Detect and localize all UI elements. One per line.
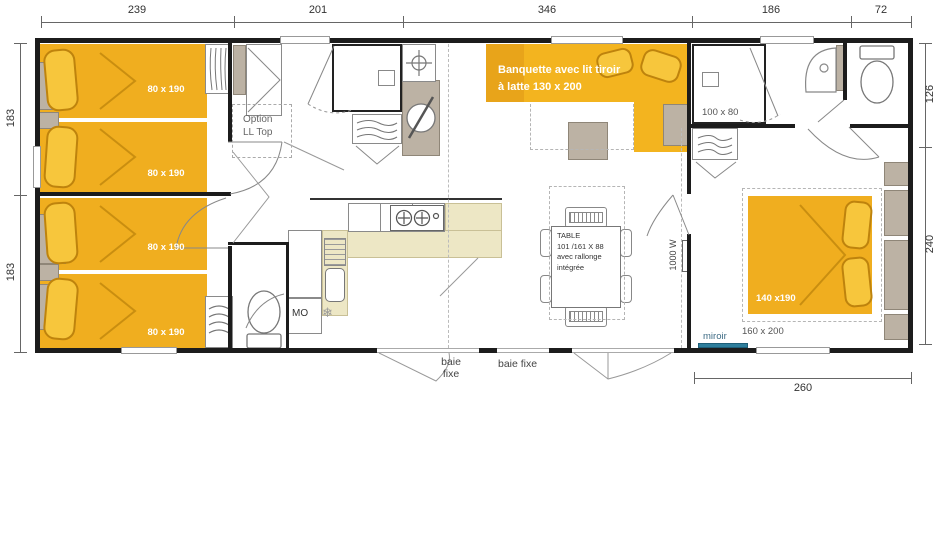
dim-label-top-1: 239: [115, 4, 159, 16]
wardrobe-master-chevron: [696, 162, 736, 178]
door-leaf-wc-right: [818, 100, 844, 122]
dim-tick: [234, 16, 235, 28]
bed-size-label-3: 80 x 190: [128, 242, 204, 253]
dim-label-right-1: 126: [924, 79, 936, 109]
window-top-3: [760, 36, 814, 44]
door-gap-master: [795, 124, 850, 128]
banquette-label-line-1: Banquette avec lit tiroir: [498, 64, 620, 76]
pillow-bed-4: [42, 276, 82, 344]
bed-size-label-2: 80 x 190: [128, 168, 204, 179]
table-label-line-4: intégrée: [557, 263, 604, 274]
dim-label-top-3: 346: [525, 4, 569, 16]
dim-tick: [911, 16, 912, 28]
mirror-strip: [698, 343, 748, 348]
dim-tick: [403, 16, 404, 28]
dim-tick: [919, 43, 932, 44]
option-washer-box: Option LL Top: [232, 104, 292, 158]
dim-tick: [694, 372, 695, 384]
kitchen-sink-drainer: [324, 238, 346, 266]
bay-fixed-left-line-1: baie: [428, 356, 474, 368]
dim-label-top-2: 201: [296, 4, 340, 16]
wall-wc-right: [286, 242, 289, 352]
table-label-line-3: avec rallonge: [557, 252, 604, 263]
mirror-label: miroir: [703, 331, 727, 342]
washbasin-center-icon: [402, 80, 440, 156]
window-bottom-center: [497, 348, 549, 353]
shower-center-door-leaf: [308, 46, 334, 104]
master-bed-size-label: 140 x190: [756, 293, 796, 304]
dim-tick: [14, 43, 27, 44]
option-washer-line-2: LL Top: [243, 126, 291, 139]
linen-cabinet-chevron: [356, 146, 399, 164]
bay-fixed-left-line-2: fixe: [428, 368, 474, 380]
toilet-right: [856, 44, 900, 106]
shower-size-label: 100 x 80: [702, 107, 738, 118]
dim-label-left-1: 183: [5, 103, 17, 133]
banquette-label-line-2: à latte 130 x 200: [498, 81, 582, 93]
dim-label-top-5: 72: [859, 4, 903, 16]
table-label-line-1: TABLE: [557, 231, 604, 242]
kitchen-sink-basin: [325, 268, 345, 302]
wall-living-master-upper: [687, 38, 691, 194]
wardrobe-master: [692, 128, 738, 160]
wall-bedroom-divider: [35, 192, 231, 196]
master-headboard-4: [884, 314, 909, 340]
kitchen-top-edge: [310, 198, 502, 200]
table-label: TABLE 101 /161 X 88 avec rallonge intégr…: [557, 231, 604, 273]
dim-label-left-2: 183: [5, 257, 17, 287]
zone-divider-dashed-left: [448, 44, 449, 348]
master-headboard-1: [884, 162, 909, 186]
master-footprint-label: 160 x 200: [742, 326, 784, 337]
corner-cabinet-swing: [440, 258, 478, 296]
door-arc-master: [808, 129, 879, 159]
wall-wc2-left: [843, 38, 847, 100]
wall-hall-lower: [228, 246, 232, 353]
dim-label-right-2: 240: [924, 229, 936, 259]
microwave-label: MO: [292, 308, 308, 319]
window-bottom-bedroom: [121, 347, 177, 354]
side-table: [663, 104, 689, 146]
toilet-left: [243, 290, 287, 350]
pillow-bed-1: [42, 47, 82, 115]
kitchen-hob: [390, 205, 444, 231]
wall-living-master-lower: [687, 234, 691, 353]
master-headboard-2: [884, 190, 909, 236]
hall-wardrobe-door: [233, 45, 246, 95]
dim-tick: [919, 147, 932, 148]
heater-label: 1000 W: [668, 230, 678, 280]
master-headboard-3: [884, 240, 909, 310]
dim-line-bottom: [694, 378, 912, 379]
wall-outer-right: [908, 38, 913, 353]
window-left: [33, 146, 41, 188]
linen-cabinet-center: [352, 114, 402, 144]
kitchen-base-cabinets: [288, 230, 322, 298]
shower-center-drain: [378, 70, 395, 86]
dim-tick: [911, 372, 912, 384]
door-leaf-master: [849, 127, 879, 157]
cabinet-divider: [380, 204, 381, 231]
pillow-bed-3: [42, 200, 82, 268]
dim-label-top-4: 186: [749, 4, 793, 16]
hall-swing-2: [284, 142, 344, 170]
bay-fixed-left-label: baie fixe: [428, 356, 474, 380]
dim-tick: [14, 195, 27, 196]
option-washer-line-1: Option: [243, 113, 291, 126]
dim-tick: [14, 352, 27, 353]
wall-wc-top: [228, 242, 289, 245]
freezer-icon: ❄: [322, 305, 333, 321]
dim-tick: [919, 344, 932, 345]
dim-tick: [692, 16, 693, 28]
window-top-1: [280, 36, 330, 44]
door-opening-entrance: [377, 348, 479, 353]
dim-label-bottom: 260: [781, 382, 825, 394]
window-top-2: [551, 36, 623, 44]
dim-line-top: [41, 22, 911, 23]
pillow-bed-2: [42, 124, 82, 192]
kitchen-counter-top: [322, 230, 502, 258]
dim-line-left: [20, 43, 21, 352]
bay-fixed-center-label: baie fixe: [498, 358, 537, 370]
living-door-swing: [574, 353, 671, 379]
window-bottom-master: [756, 347, 830, 354]
shower-right-drain: [702, 72, 719, 87]
dim-tick: [851, 16, 852, 28]
washbasin-right-icon: [798, 46, 840, 96]
bed-size-label-4: 80 x 190: [128, 327, 204, 338]
floor-plan: 239 201 346 186 72 183 183 126 240 260 8…: [0, 0, 940, 550]
hall-swing-1: [233, 152, 269, 243]
water-heater-unit: [402, 44, 436, 82]
door-opening-living: [572, 348, 674, 353]
dim-tick: [41, 16, 42, 28]
banquette-bed-footprint: [530, 104, 634, 150]
table-label-line-2: 101 /161 X 88: [557, 242, 604, 253]
zone-divider-dashed-right: [681, 128, 682, 348]
bed-size-label-1: 80 x 190: [128, 84, 204, 95]
